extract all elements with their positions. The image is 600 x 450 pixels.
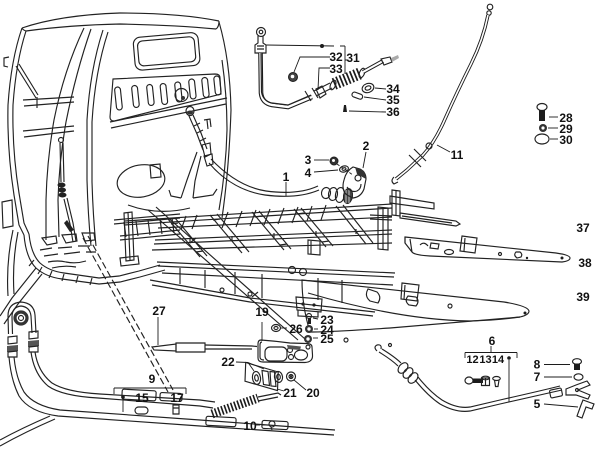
svg-text:6: 6 <box>489 334 496 348</box>
svg-text:31: 31 <box>346 51 360 65</box>
svg-text:10: 10 <box>243 419 257 433</box>
svg-text:5: 5 <box>534 397 541 411</box>
svg-text:8: 8 <box>534 358 541 372</box>
svg-text:15: 15 <box>135 391 149 405</box>
svg-text:21: 21 <box>283 386 297 400</box>
svg-text:13: 13 <box>479 354 491 366</box>
svg-text:4: 4 <box>305 166 312 180</box>
svg-text:38: 38 <box>578 256 592 270</box>
svg-text:2: 2 <box>363 139 370 153</box>
svg-text:39: 39 <box>576 290 590 304</box>
svg-text:11: 11 <box>451 148 464 162</box>
svg-text:26: 26 <box>289 322 303 336</box>
svg-text:7: 7 <box>534 370 541 384</box>
svg-text:33: 33 <box>329 62 343 76</box>
svg-text:37: 37 <box>576 221 590 235</box>
svg-text:30: 30 <box>559 133 573 147</box>
svg-text:36: 36 <box>386 105 400 119</box>
svg-text:12: 12 <box>466 354 478 366</box>
svg-text:22: 22 <box>221 355 235 369</box>
svg-text:25: 25 <box>320 332 334 346</box>
svg-text:14: 14 <box>492 354 505 366</box>
svg-text:17: 17 <box>170 391 184 405</box>
svg-text:19: 19 <box>255 305 269 319</box>
svg-text:9: 9 <box>149 372 156 386</box>
svg-text:1: 1 <box>283 170 290 184</box>
svg-text:3: 3 <box>305 153 312 167</box>
svg-text:27: 27 <box>152 304 166 318</box>
svg-text:20: 20 <box>306 386 320 400</box>
